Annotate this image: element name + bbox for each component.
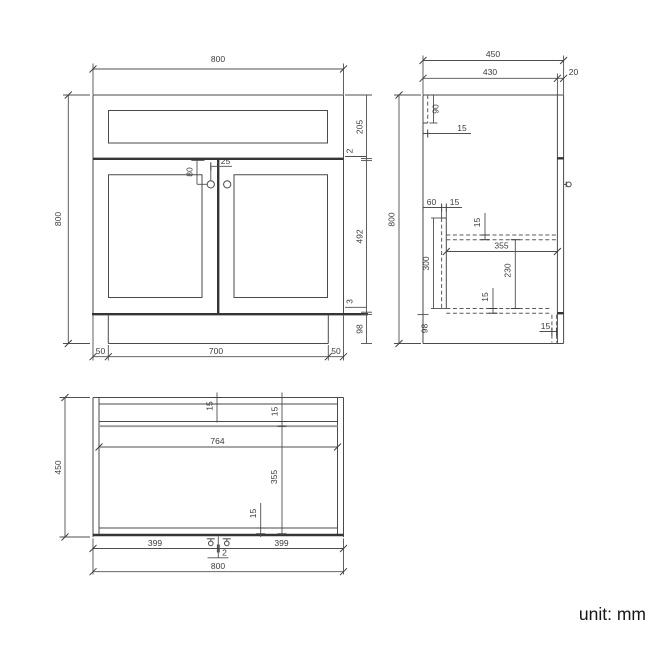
plan-view-outline bbox=[93, 398, 344, 538]
dim-side-bottom-thickness: 15 bbox=[480, 292, 490, 302]
dim-plan-inner-width: 764 bbox=[210, 436, 224, 446]
knob-icon bbox=[224, 181, 231, 188]
dim-front-gap-bottom: 3 bbox=[345, 299, 355, 304]
dim-side-plinth-height: 98 bbox=[420, 324, 430, 334]
knob-side-icon bbox=[566, 182, 571, 187]
dim-front-knob-drop: 80 bbox=[185, 167, 195, 177]
dim-side-under-shelf-height: 230 bbox=[502, 263, 512, 277]
vanity-drawing-svg: 800 800 205 2 492 3 98 50 700 50 80 25 bbox=[0, 0, 650, 650]
knob-icon bbox=[207, 181, 214, 188]
plan-view: 450 15 15 764 355 15 399 399 2 800 bbox=[53, 393, 347, 576]
left-door-panel bbox=[109, 175, 203, 298]
dim-side-depth-carcass: 430 bbox=[483, 67, 497, 77]
dim-front-knob-offset: 25 bbox=[221, 156, 231, 166]
dim-plan-depth-left: 450 bbox=[53, 460, 63, 474]
side-view-dimensions bbox=[394, 56, 567, 348]
dim-side-door-thickness: 20 bbox=[569, 67, 579, 77]
dim-side-shelf-depth: 355 bbox=[494, 241, 508, 251]
dim-side-height-left: 800 bbox=[387, 212, 397, 226]
dim-side-shelf-thickness: 15 bbox=[472, 218, 482, 228]
technical-drawing-page: 800 800 205 2 492 3 98 50 700 50 80 25 bbox=[0, 0, 650, 650]
knob-plan-icon bbox=[225, 541, 230, 546]
side-view-knob bbox=[564, 182, 572, 188]
dim-plan-door-gap: 2 bbox=[222, 548, 227, 558]
dim-front-plinth-width: 700 bbox=[209, 346, 223, 356]
plan-view-dimensions bbox=[60, 393, 348, 576]
dim-plan-rail-thickness: 15 bbox=[269, 407, 279, 417]
dim-plan-door-left-width: 399 bbox=[148, 538, 162, 548]
dim-front-width-top: 800 bbox=[211, 54, 225, 64]
front-view: 800 800 205 2 492 3 98 50 700 50 80 25 bbox=[53, 54, 372, 361]
knob-plan-icon bbox=[209, 541, 214, 546]
dim-front-plinth-inset-right: 50 bbox=[331, 346, 341, 356]
dim-plan-door-right-width: 399 bbox=[274, 538, 288, 548]
dim-front-gap-top: 2 bbox=[345, 148, 355, 153]
dim-side-bar-offset: 60 bbox=[427, 197, 437, 207]
dim-front-height-left: 800 bbox=[53, 212, 63, 226]
dim-plan-shelf-depth: 355 bbox=[269, 470, 279, 484]
dim-front-plinth-inset-left: 50 bbox=[96, 346, 106, 356]
dim-front-drawer-height: 205 bbox=[355, 120, 365, 134]
dim-side-bar-thickness: 15 bbox=[450, 197, 460, 207]
drawer-front-panel bbox=[109, 111, 328, 144]
front-view-outline bbox=[92, 95, 368, 344]
dim-front-door-height: 492 bbox=[355, 229, 365, 243]
dim-plan-back-thickness: 15 bbox=[204, 401, 214, 411]
dim-plan-front-rail-thickness: 15 bbox=[248, 509, 258, 519]
dim-side-depth-total: 450 bbox=[486, 49, 500, 59]
unit-note: unit: mm bbox=[551, 604, 646, 625]
side-view: 450 430 20 800 90 15 60 15 300 15 355 23… bbox=[387, 49, 579, 347]
right-door-panel bbox=[234, 175, 328, 298]
dim-side-back-rail-thickness: 15 bbox=[457, 123, 467, 133]
dim-side-bar-height: 300 bbox=[421, 256, 431, 270]
dim-plan-width-bottom: 800 bbox=[211, 561, 225, 571]
dim-side-back-rail-height: 90 bbox=[430, 104, 440, 114]
dim-side-plinth-recess: 15 bbox=[541, 321, 551, 331]
dim-front-plinth-height: 98 bbox=[355, 324, 365, 334]
